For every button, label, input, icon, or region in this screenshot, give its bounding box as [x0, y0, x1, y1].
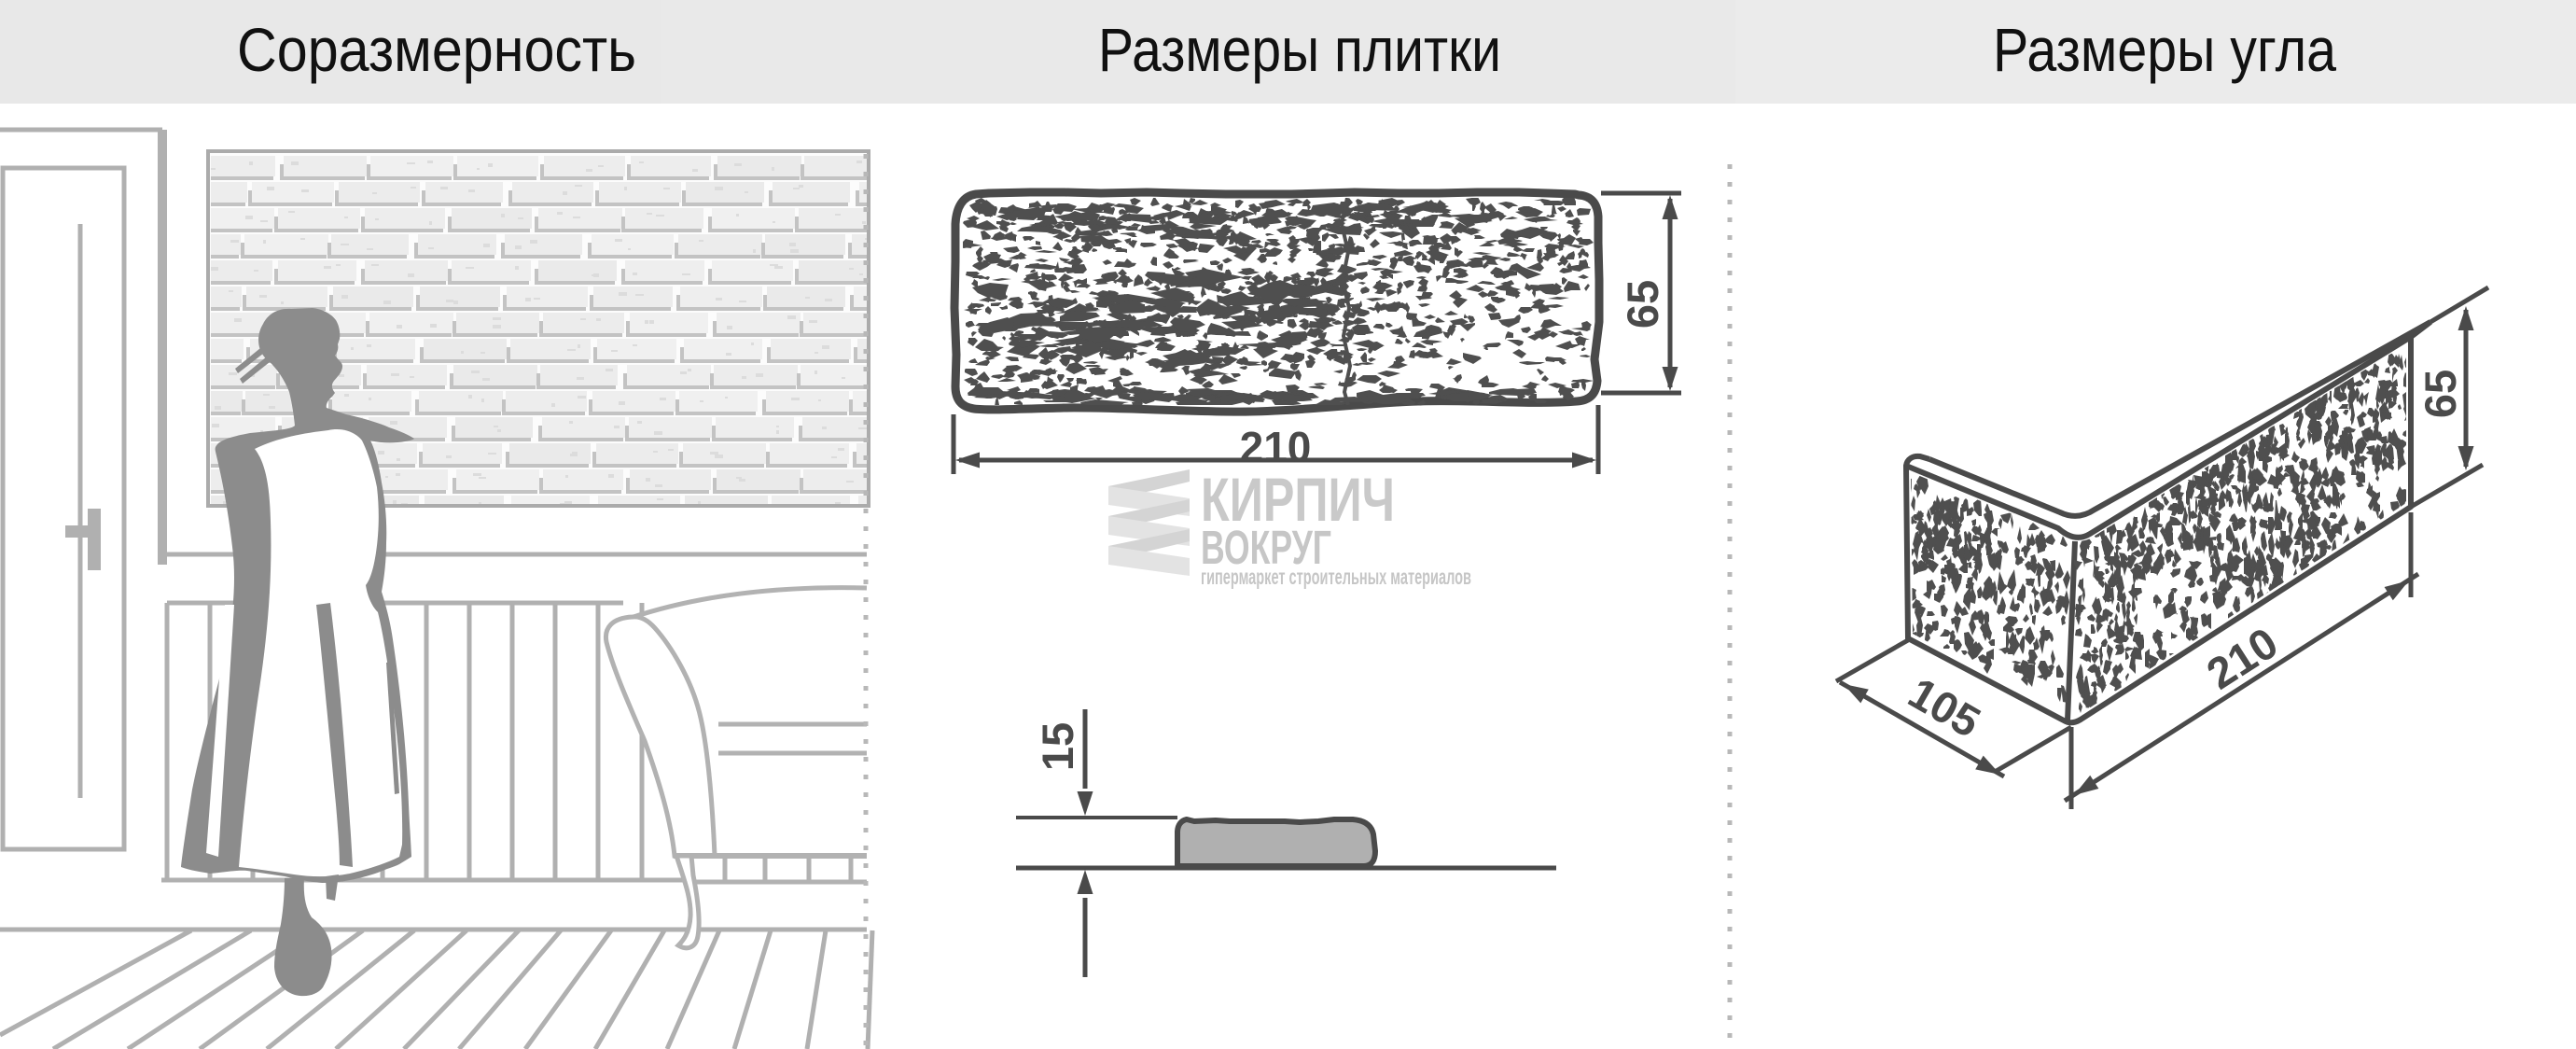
- svg-text:гипермаркет строительных матер: гипермаркет строительных материалов: [1201, 565, 1471, 589]
- svg-text:Соразмерность: Соразмерность: [237, 15, 636, 84]
- svg-text:105: 105: [1901, 667, 1988, 747]
- svg-text:65: 65: [2416, 370, 2465, 418]
- svg-text:65: 65: [1618, 280, 1667, 329]
- svg-text:Размеры плитки: Размеры плитки: [1098, 15, 1501, 84]
- svg-text:Размеры угла: Размеры угла: [1993, 15, 2336, 84]
- svg-text:15: 15: [1033, 722, 1082, 771]
